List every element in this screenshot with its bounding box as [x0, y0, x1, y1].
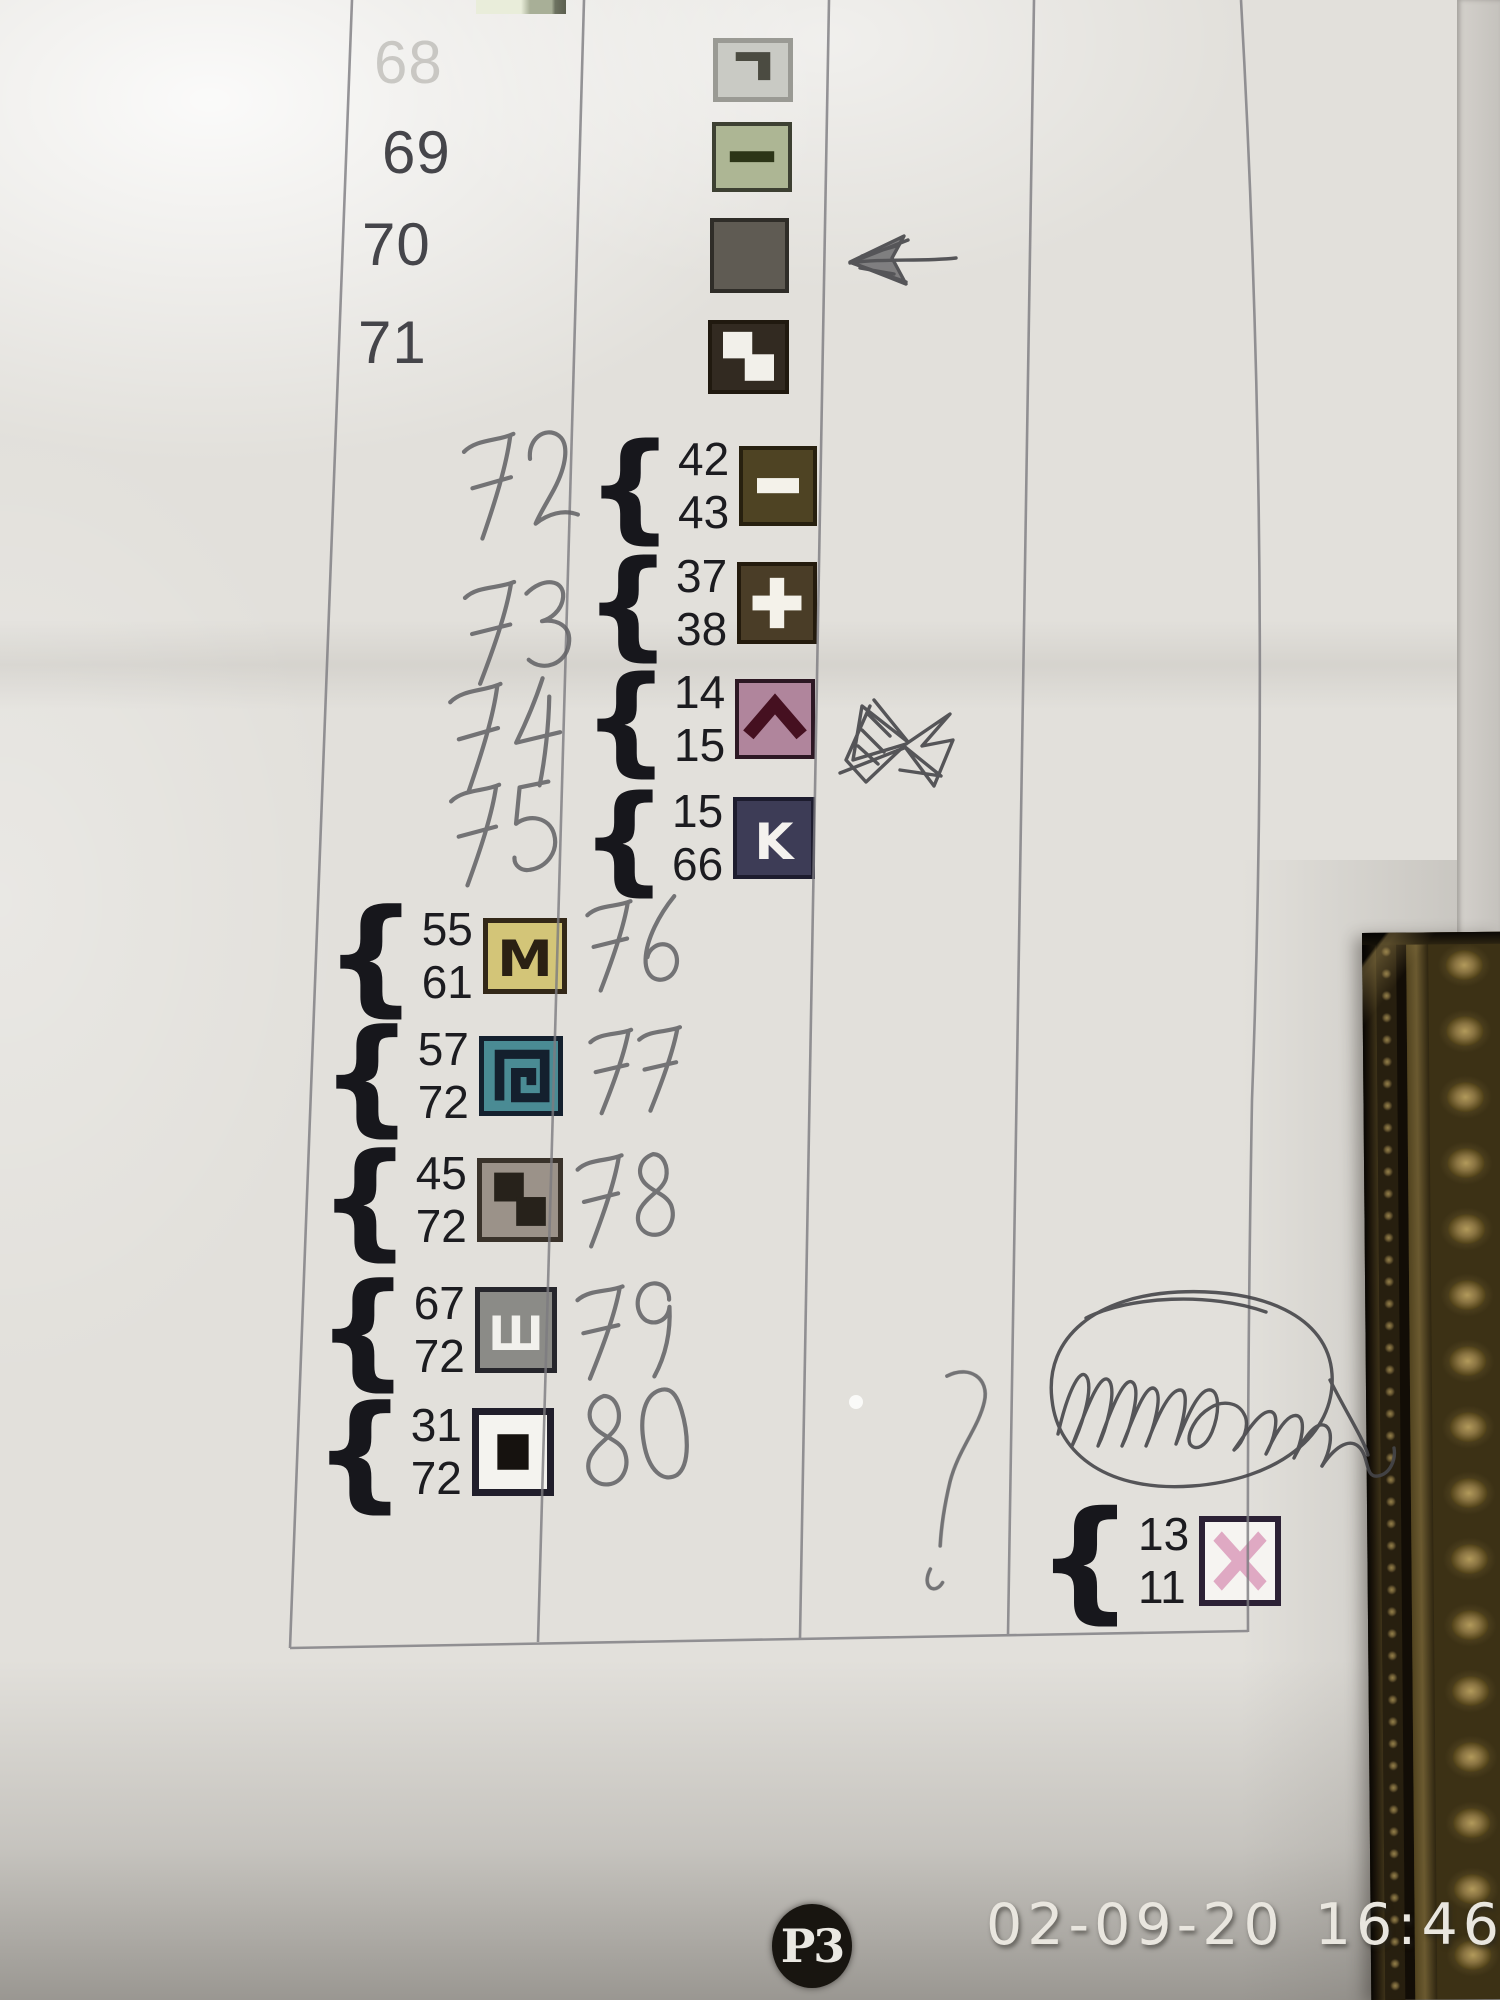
handwritten-numbers: [449, 428, 987, 1591]
bowtie-scribble: [840, 700, 953, 786]
circled-signature: [1051, 1292, 1394, 1487]
timestamp-time: 16:46: [1315, 1892, 1500, 1958]
page-badge: P3: [772, 1904, 852, 1988]
paper-chip: [849, 1395, 863, 1409]
left-arrow-doodle: [850, 236, 956, 284]
annotations-layer: [0, 0, 1500, 2000]
camera-timestamp: 02-09-2016:46: [986, 1892, 1500, 1958]
page-badge-label: P3: [781, 1919, 844, 1973]
photographed-legend-page: 68 69 70 71 { 4243 { 3738 { 1415 { 1566 …: [0, 0, 1500, 2000]
timestamp-date: 02-09-20: [986, 1892, 1285, 1958]
